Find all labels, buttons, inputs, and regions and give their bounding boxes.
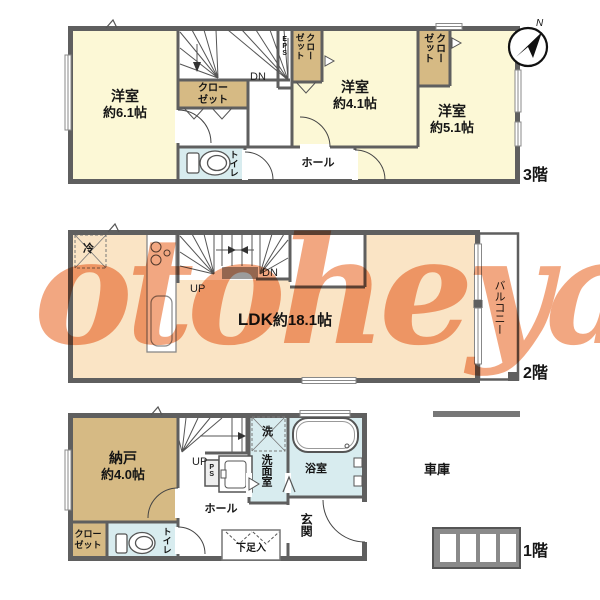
room-yoshitsu-41: 洋室約4.1帖	[305, 79, 405, 111]
washer-label: 洗	[262, 426, 273, 439]
eps-label: EPS	[280, 36, 288, 57]
hall-label: ホール	[286, 157, 350, 170]
entrance-label: 玄関	[299, 513, 313, 551]
closet-label: クロー ゼット	[421, 33, 445, 85]
balcony-label: バルコニー	[492, 280, 505, 356]
room-size: 約18.1帖	[273, 312, 332, 329]
closet-label: クロー ゼット	[181, 83, 245, 107]
garage-gate	[433, 528, 520, 568]
ps-label: PS	[207, 464, 215, 478]
stairs-down-label: DN	[262, 267, 278, 280]
toilet-label: トイレ	[228, 150, 239, 182]
washroom-label: 洗面室	[259, 454, 272, 506]
floor2-fills	[70, 232, 478, 380]
closet-label: クロー ゼット	[294, 33, 315, 81]
room-name: 洋室	[305, 79, 405, 96]
room-size: 約6.1帖	[72, 105, 178, 120]
stairs-up-label: UP	[190, 283, 205, 296]
room-name: 洋室	[72, 88, 178, 105]
floor1-label: 1階	[523, 543, 548, 562]
room-name: 洋室	[400, 103, 504, 120]
room-size: 約4.0帖	[73, 467, 173, 482]
fridge-label: 冷	[83, 243, 94, 256]
closet-label: クロー ゼット	[63, 529, 113, 550]
shoe-box-label: 下足入	[224, 543, 278, 555]
toilet-3f-fixture	[187, 151, 230, 175]
floor2-label: 2階	[523, 365, 548, 384]
toilet-label: トイレ	[161, 527, 172, 559]
room-name: LDK	[238, 310, 273, 329]
room-size: 約5.1帖	[400, 120, 504, 135]
compass	[509, 28, 547, 66]
garage-label: 車庫	[424, 462, 450, 477]
room-yoshitsu-61: 洋室約6.1帖	[72, 88, 178, 120]
stairs-up-label: UP	[192, 456, 207, 469]
bathroom-label: 浴室	[305, 463, 327, 476]
stairs-down-label: DN	[250, 71, 266, 84]
room-size: 約4.1帖	[305, 96, 405, 111]
garage-wall	[433, 411, 520, 417]
hall-label: ホール	[190, 503, 252, 516]
stairs-1f	[178, 418, 246, 452]
compass-north-label: N	[536, 18, 543, 30]
floorplan: 洋室約6.1帖 洋室約4.1帖 洋室約5.1帖 クロー ゼット クロー ゼット …	[0, 0, 600, 600]
room-yoshitsu-51: 洋室約5.1帖	[400, 103, 504, 135]
room-ldk: LDK約18.1帖	[230, 310, 340, 330]
room-storage: 納戸約4.0帖	[73, 450, 173, 482]
room-name: 納戸	[73, 450, 173, 467]
floor3-label: 3階	[523, 167, 548, 186]
toilet-1f-fixture	[116, 533, 155, 554]
kitchen	[147, 232, 176, 352]
